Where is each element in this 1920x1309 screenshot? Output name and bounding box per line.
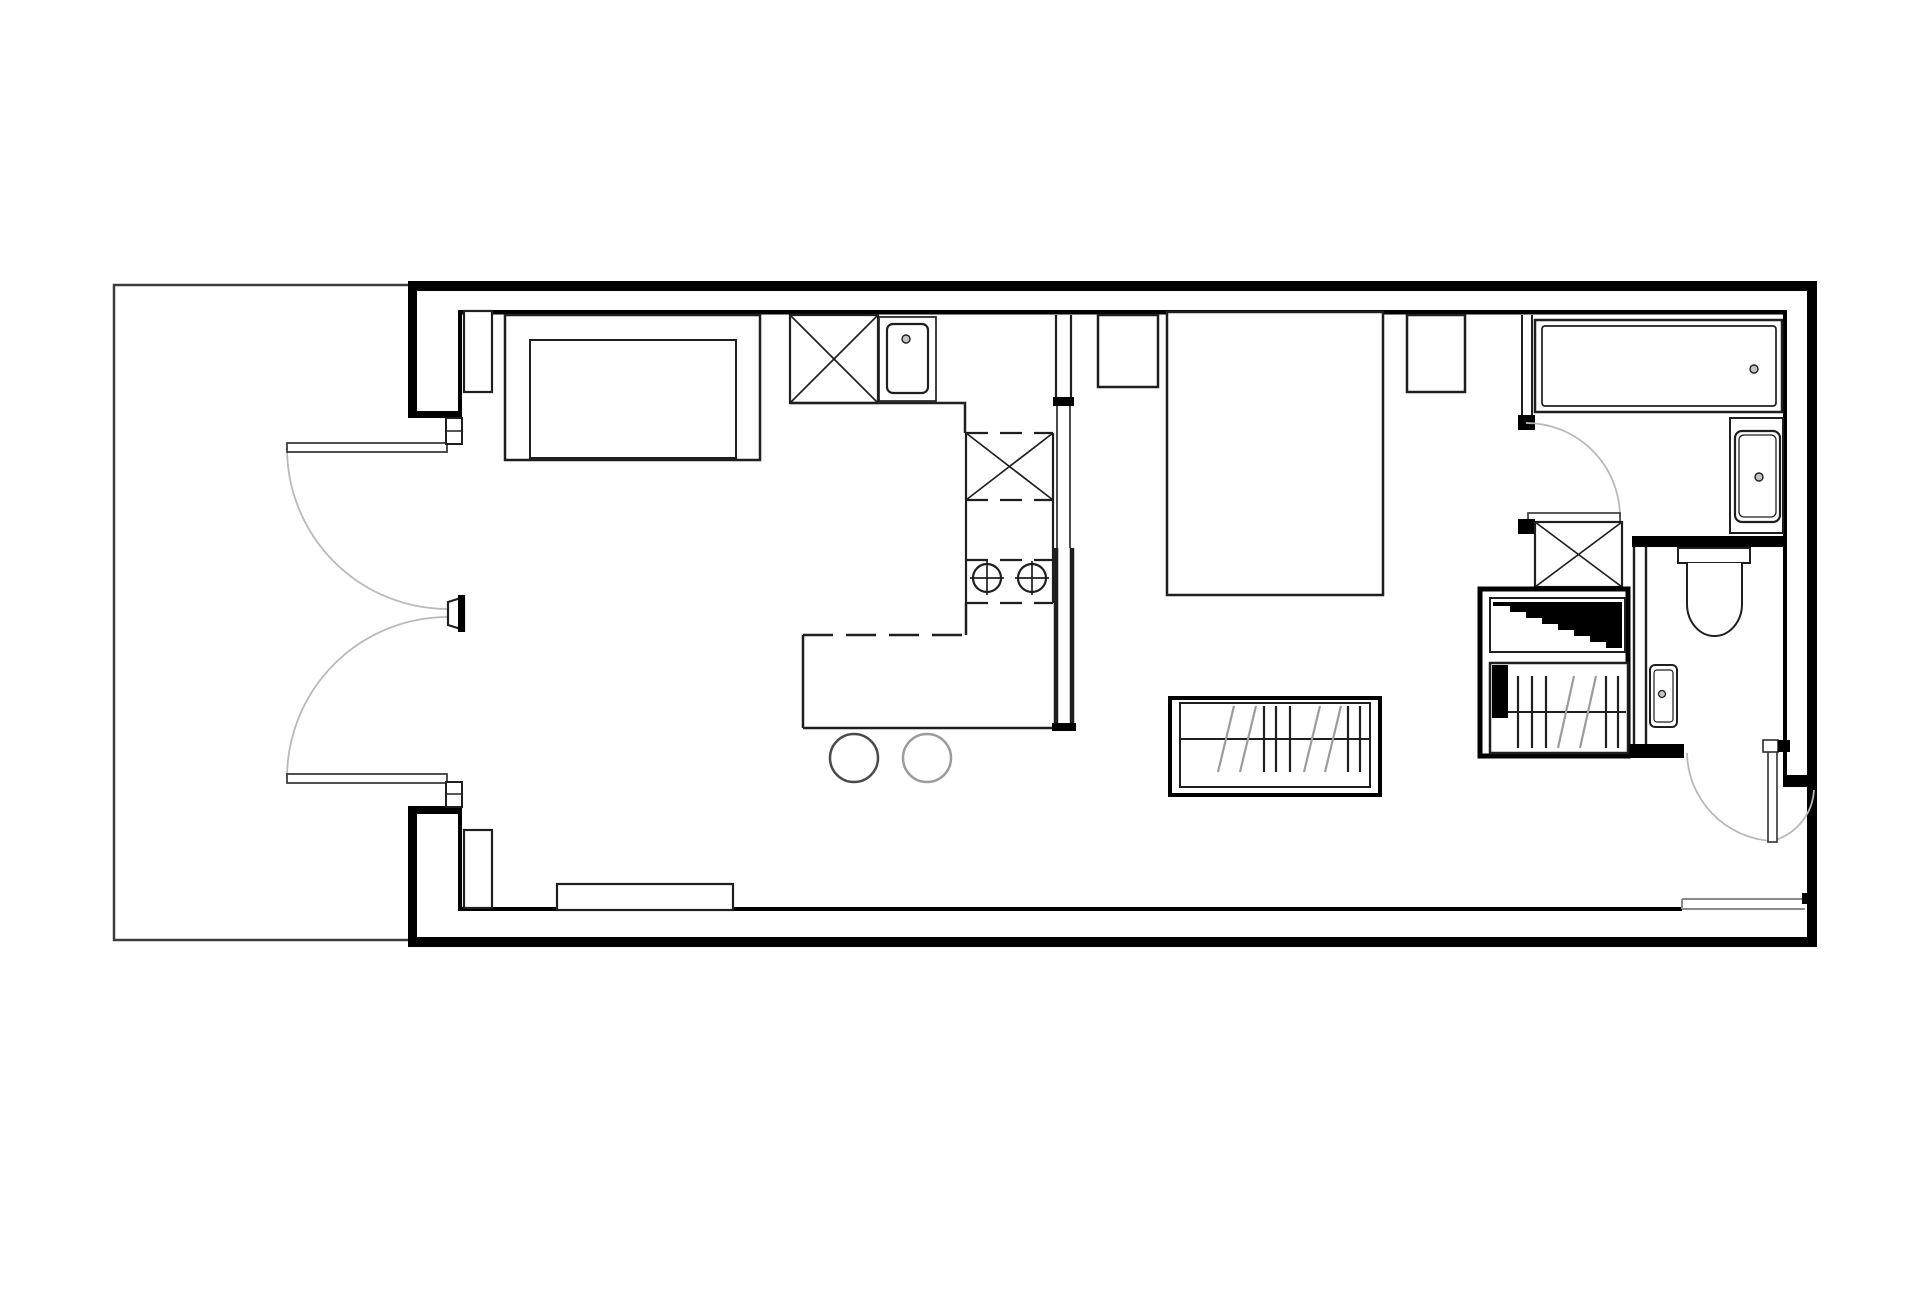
- bedroom-radiator: [1170, 698, 1380, 795]
- bar-stool-left: [830, 734, 878, 782]
- nightstand-left: [1098, 315, 1158, 387]
- basin-faucet-dot: [1755, 473, 1763, 481]
- door-leaf: [1768, 750, 1777, 842]
- tall-cabinet-x: [790, 315, 878, 403]
- double-entry-doors-to-terrace: [287, 418, 465, 807]
- wc-wall-corner: [1630, 744, 1684, 758]
- kitchen-island: [803, 635, 1055, 728]
- door-swing-arc: [1687, 753, 1772, 841]
- floor-plan-page: Black and white architectural floor plan…: [0, 0, 1920, 1309]
- wall-pier-bottom: [464, 830, 492, 908]
- door-leaf-lower: [287, 774, 447, 783]
- duct-shaft-x: [1535, 522, 1622, 587]
- wc-hand-basin: [1650, 665, 1677, 727]
- nightstand-right: [1407, 315, 1465, 392]
- toilet-bowl: [1687, 563, 1742, 636]
- stair-void-block: [1480, 589, 1628, 756]
- wc-door: [1687, 740, 1814, 842]
- faucet-dot: [902, 335, 910, 343]
- floor-plan-drawing: Black and white architectural floor plan…: [0, 0, 1920, 1309]
- tub-drain-dot: [1750, 365, 1758, 373]
- door-swing-arc-lower: [287, 617, 448, 778]
- kitchen-bedroom-partition: [1052, 315, 1076, 731]
- door-swing-arc: [1526, 423, 1620, 517]
- door-hinge: [1763, 740, 1778, 752]
- bathtub: [1535, 320, 1782, 412]
- hall-radiator: [1490, 663, 1628, 753]
- washbasin-vanity: [1730, 418, 1783, 533]
- mid-cabinet-x: [966, 433, 1053, 500]
- door-leaf-upper: [287, 443, 447, 452]
- basin-dot: [1659, 691, 1666, 698]
- sofa: [505, 315, 760, 460]
- threshold-jamb: [1802, 893, 1813, 904]
- wc-niche-wall: [1632, 536, 1784, 547]
- door-leaf: [1528, 513, 1620, 522]
- door-swing-arc-upper: [287, 448, 448, 609]
- terrace-boundary: [114, 285, 412, 940]
- counter-compartment: [966, 500, 1053, 560]
- wc-room: [1630, 536, 1784, 758]
- bench-seat: [557, 884, 733, 910]
- toilet-cistern: [1678, 548, 1750, 563]
- wall-pier-top: [464, 311, 492, 392]
- toilet: [1678, 548, 1750, 636]
- bar-stool-right: [903, 734, 951, 782]
- kitchen-counter: [790, 403, 966, 635]
- kitchen-sink: [879, 317, 936, 401]
- bed: [1167, 312, 1383, 595]
- cooktop-two-burners: [966, 560, 1053, 603]
- entrance-threshold: [1682, 893, 1813, 909]
- door-jamb-bottom: [1518, 519, 1535, 534]
